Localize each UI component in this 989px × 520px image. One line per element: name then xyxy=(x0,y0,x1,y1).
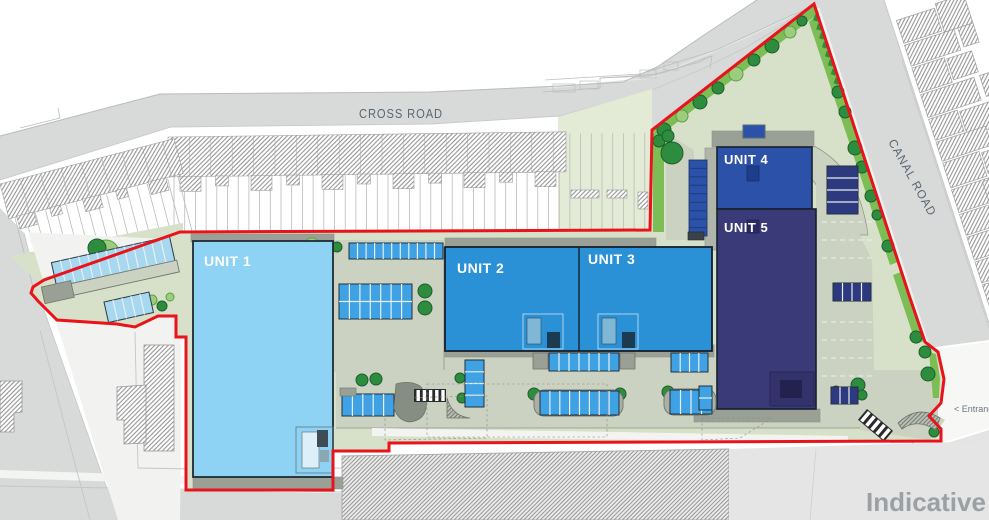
svg-text:< Entrance: < Entrance xyxy=(954,404,989,414)
svg-text:UNIT 1: UNIT 1 xyxy=(204,253,251,269)
svg-text:UNIT 4: UNIT 4 xyxy=(724,152,768,167)
svg-text:Indicative: Indicative xyxy=(866,487,986,517)
svg-text:UNIT 5: UNIT 5 xyxy=(724,220,768,235)
svg-text:UNIT 2: UNIT 2 xyxy=(457,260,504,276)
svg-text:UNIT 3: UNIT 3 xyxy=(588,251,635,267)
svg-text:CROSS ROAD: CROSS ROAD xyxy=(359,107,443,121)
